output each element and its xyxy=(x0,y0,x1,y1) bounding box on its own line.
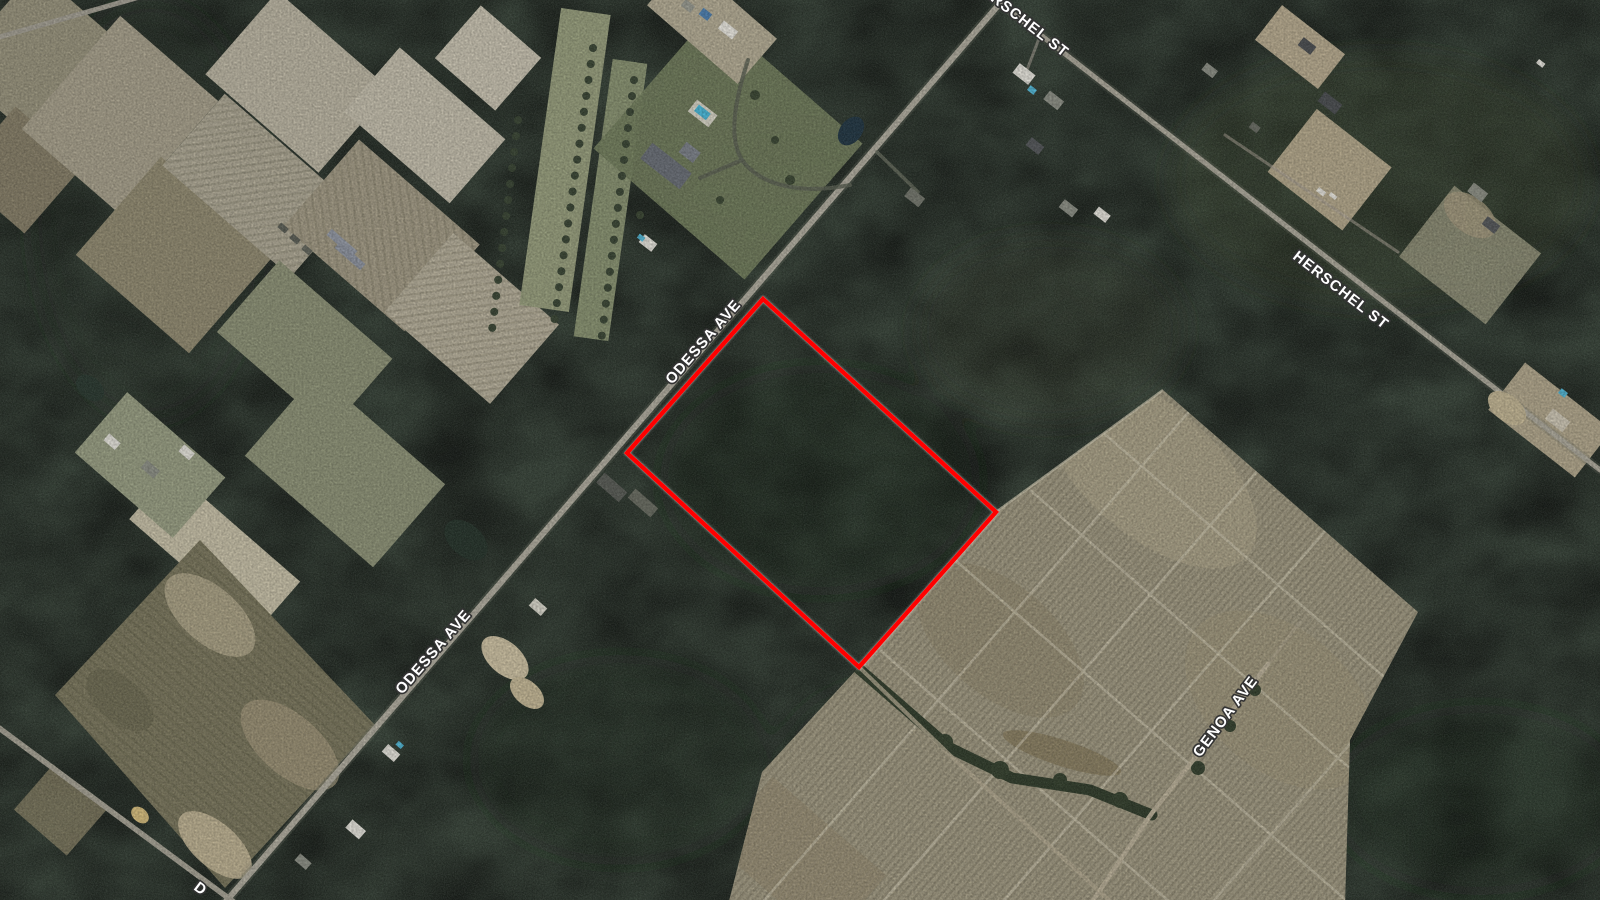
satellite-imagery: HERSCHEL ST HERSCHEL ST ODESSA AVE ODESS… xyxy=(0,0,1600,900)
image-grain xyxy=(0,0,1600,900)
satellite-map[interactable]: HERSCHEL ST HERSCHEL ST ODESSA AVE ODESS… xyxy=(0,0,1600,900)
